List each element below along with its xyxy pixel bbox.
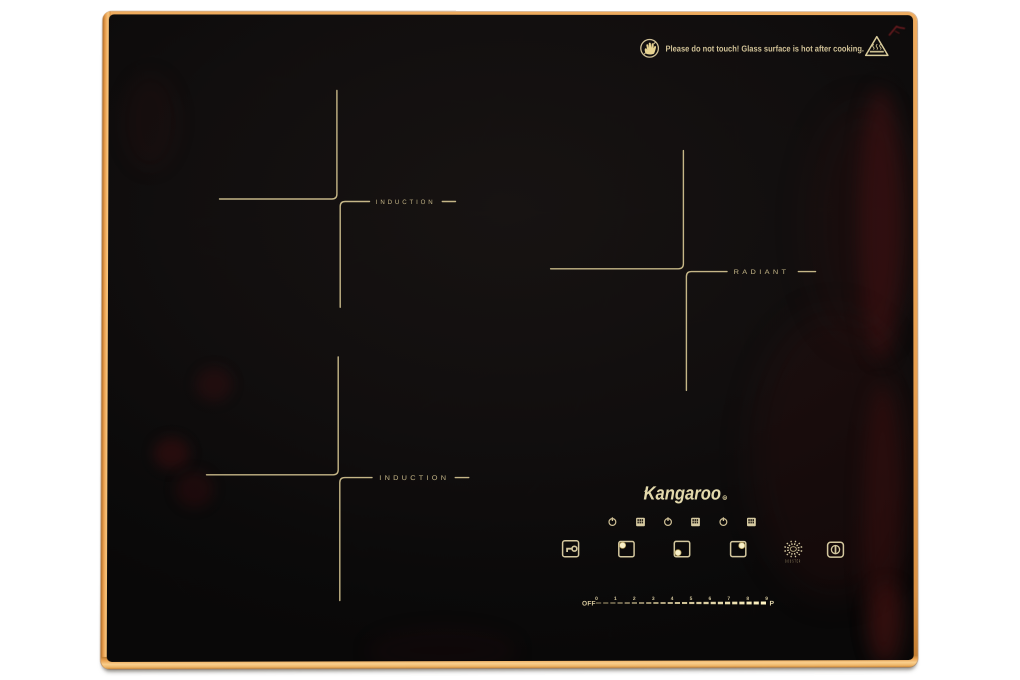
svg-text:3: 3 [652,596,655,602]
svg-text:Please do not touch! Glass sur: Please do not touch! Glass surface is ho… [666,43,865,53]
svg-text:P: P [770,601,775,608]
svg-text:7: 7 [727,596,730,602]
svg-text:4: 4 [671,596,674,602]
svg-text:6: 6 [709,596,712,602]
svg-text:9: 9 [765,596,768,602]
svg-text:INDUCTION: INDUCTION [376,199,436,206]
svg-text:INDUCTION: INDUCTION [379,475,449,482]
svg-text:5: 5 [690,596,693,602]
svg-text:BOOSTER: BOOSTER [785,558,801,563]
svg-text:RADIANT: RADIANT [734,269,790,276]
svg-text:1: 1 [614,596,617,602]
svg-text:Kangaroo: Kangaroo [644,483,722,504]
svg-text:2: 2 [633,596,636,602]
svg-text:OFF: OFF [582,601,596,608]
svg-text:8: 8 [746,596,749,602]
